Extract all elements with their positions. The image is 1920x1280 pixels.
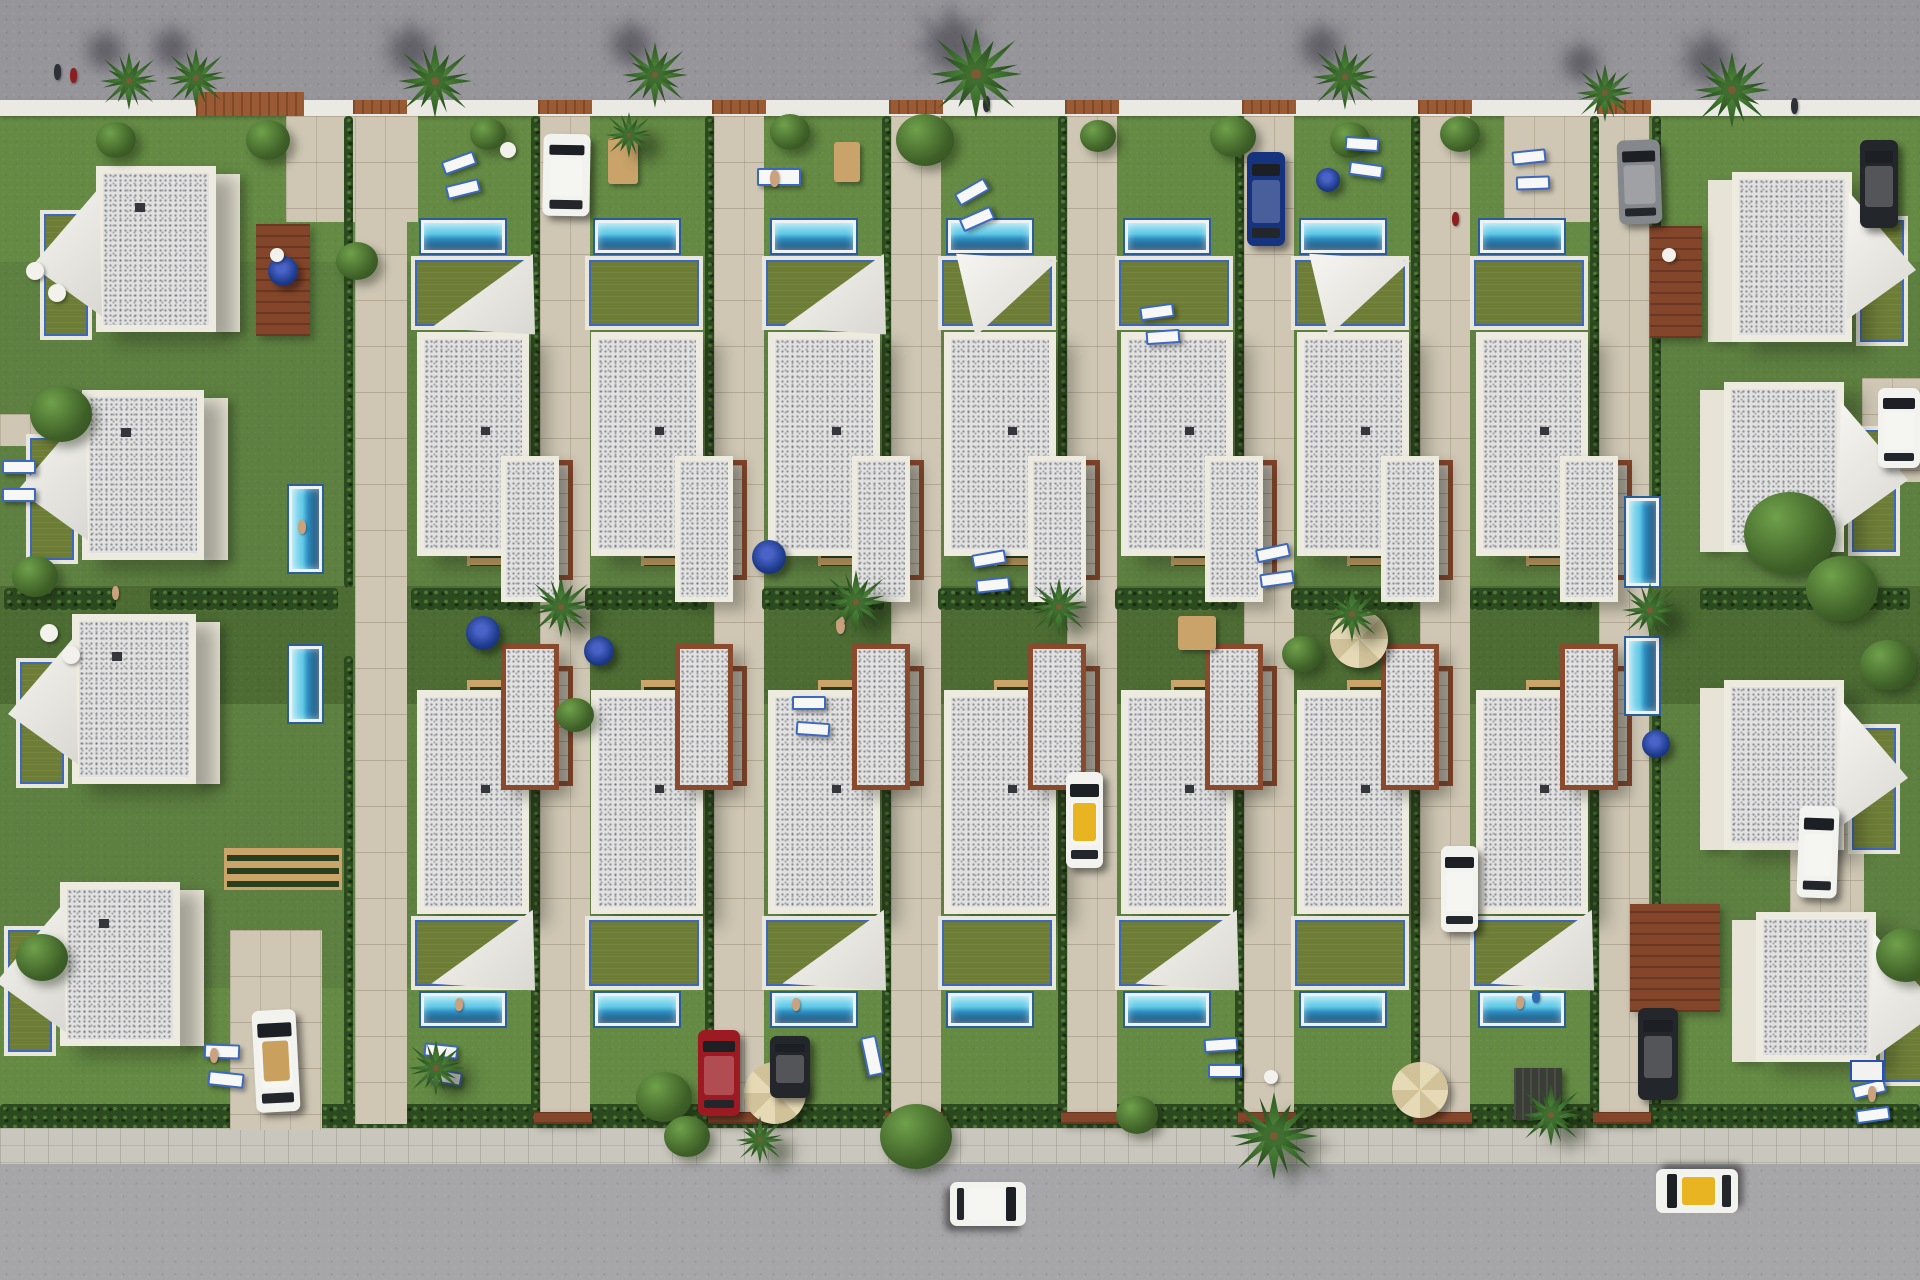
bush bbox=[12, 556, 58, 597]
roof-vent bbox=[655, 427, 664, 435]
car-dark bbox=[1860, 140, 1898, 228]
car-windshield bbox=[1883, 398, 1915, 408]
car-blue bbox=[1247, 152, 1285, 246]
car-rear-window bbox=[776, 1086, 805, 1092]
entrance-deck bbox=[1418, 100, 1472, 114]
lounger-prop bbox=[1204, 1037, 1239, 1053]
car-roof bbox=[1884, 412, 1914, 449]
bush bbox=[1806, 556, 1878, 621]
car-rear-window bbox=[1802, 880, 1831, 890]
chair-prop bbox=[270, 248, 284, 262]
bush bbox=[636, 1072, 692, 1122]
villa-side-wall bbox=[1708, 180, 1734, 342]
palm-tree bbox=[398, 44, 472, 118]
cool-prop bbox=[1850, 1060, 1884, 1082]
roof-vent bbox=[135, 203, 145, 212]
wood-deck bbox=[1650, 226, 1702, 338]
villa-side-wall bbox=[214, 174, 240, 332]
car-gray bbox=[1617, 139, 1663, 224]
bush bbox=[30, 386, 92, 442]
entrance-deck bbox=[712, 100, 766, 114]
bush bbox=[16, 934, 68, 981]
driveway bbox=[1244, 116, 1294, 1124]
chair-prop bbox=[62, 646, 80, 664]
car-conv bbox=[251, 1009, 300, 1113]
umb-n-prop bbox=[466, 616, 500, 650]
taxi-yellow-panel bbox=[1682, 1177, 1715, 1205]
bush bbox=[1282, 636, 1322, 672]
person bbox=[1532, 990, 1540, 1003]
bush bbox=[880, 1104, 952, 1169]
roof-terrace bbox=[1115, 256, 1233, 330]
person bbox=[1516, 996, 1524, 1009]
bush bbox=[896, 114, 954, 166]
palm-fronds bbox=[1230, 1092, 1318, 1180]
chair-prop bbox=[1264, 1070, 1278, 1084]
car-windshield bbox=[257, 1022, 291, 1037]
car-windshield bbox=[1865, 151, 1894, 162]
roof-vent bbox=[112, 652, 122, 661]
car-roof bbox=[549, 158, 583, 196]
palm-tree bbox=[1694, 52, 1770, 128]
car-windshield bbox=[1622, 150, 1655, 162]
swimming-pool bbox=[948, 993, 1032, 1026]
car-rear-window bbox=[1644, 1083, 1673, 1092]
bottom-sidewalk bbox=[0, 1128, 1920, 1166]
entrance-deck bbox=[538, 100, 592, 114]
villa-side-wall bbox=[1700, 390, 1726, 552]
villa-upper-wing bbox=[675, 456, 733, 602]
bush bbox=[96, 122, 136, 158]
roof-vent bbox=[1361, 785, 1370, 793]
palm-fronds bbox=[100, 52, 158, 110]
swimming-pool bbox=[1125, 993, 1209, 1026]
roof-terrace bbox=[1291, 916, 1409, 990]
palm-tree bbox=[1576, 64, 1634, 122]
table-prop bbox=[1178, 616, 1216, 650]
swimming-pool bbox=[1301, 993, 1385, 1026]
roof-vent bbox=[1540, 427, 1549, 435]
bush bbox=[770, 114, 810, 150]
car-windshield bbox=[549, 144, 585, 155]
bush bbox=[1860, 640, 1916, 690]
person bbox=[112, 586, 119, 600]
driveway bbox=[714, 116, 764, 1124]
person bbox=[455, 998, 463, 1011]
car-roof bbox=[1623, 165, 1655, 205]
palm-tree bbox=[1622, 582, 1678, 638]
entrance-deck bbox=[1242, 100, 1296, 114]
corner-villa-roof bbox=[82, 390, 204, 560]
person bbox=[792, 998, 800, 1011]
person bbox=[1791, 98, 1798, 114]
roof-vent bbox=[832, 785, 841, 793]
villa-upper-wing bbox=[1205, 644, 1263, 790]
chair-prop bbox=[26, 262, 44, 280]
roof-vent bbox=[655, 785, 664, 793]
swimming-pool-vertical bbox=[1626, 638, 1659, 714]
palm-fronds bbox=[398, 44, 472, 118]
car-rear-window bbox=[1884, 453, 1914, 461]
palm-fronds bbox=[1324, 586, 1380, 642]
roof-terrace bbox=[1470, 256, 1588, 330]
roof-vent bbox=[1540, 785, 1549, 793]
corner-villa-roof bbox=[1756, 912, 1876, 1062]
car-windshield bbox=[1445, 857, 1473, 868]
taxi-yellow-panel bbox=[1073, 803, 1097, 841]
roof-vent bbox=[1008, 427, 1017, 435]
car-roof bbox=[968, 1188, 1003, 1220]
car-windshield bbox=[1070, 784, 1098, 796]
car-rear-window bbox=[704, 1100, 734, 1109]
driveway bbox=[891, 116, 941, 1124]
chair-prop bbox=[48, 284, 66, 302]
roof-vent bbox=[1185, 427, 1194, 435]
car-dark bbox=[770, 1036, 810, 1098]
roof-vent bbox=[832, 427, 841, 435]
villa-upper-wing bbox=[1381, 644, 1439, 790]
driveway bbox=[1420, 116, 1470, 1124]
swimming-pool bbox=[595, 993, 679, 1026]
car-roof bbox=[1865, 166, 1892, 207]
lounger-prop bbox=[796, 721, 831, 737]
bush bbox=[246, 120, 290, 160]
lounger-prop bbox=[757, 168, 801, 186]
palm-tree bbox=[824, 570, 888, 634]
villa-upper-wing bbox=[1381, 456, 1439, 602]
villa-side-wall bbox=[1732, 920, 1758, 1062]
palm-tree bbox=[606, 112, 652, 158]
villa-upper-wing bbox=[501, 644, 559, 790]
car-white bbox=[542, 134, 590, 217]
swimming-pool-vertical bbox=[289, 646, 322, 722]
palm-tree bbox=[530, 576, 592, 638]
umb-n-prop bbox=[1316, 168, 1340, 192]
car-white bbox=[1796, 805, 1839, 898]
hedge-line bbox=[344, 656, 353, 1108]
palm-fronds bbox=[622, 42, 688, 108]
roof-terrace bbox=[585, 256, 703, 330]
umb-n-prop bbox=[752, 540, 786, 574]
villa-upper-wing bbox=[675, 644, 733, 790]
car-windshield bbox=[1643, 1020, 1673, 1032]
wood-deck bbox=[1630, 904, 1720, 1012]
umb-n-prop bbox=[1642, 730, 1670, 758]
car-roof bbox=[776, 1055, 805, 1084]
swimming-pool bbox=[1301, 220, 1385, 253]
car-roof bbox=[704, 1056, 734, 1096]
convertible-interior bbox=[262, 1040, 291, 1082]
villa-upper-wing bbox=[1560, 456, 1618, 602]
umb-n-prop bbox=[584, 636, 614, 666]
palm-tree bbox=[100, 52, 158, 110]
car-roof bbox=[1803, 833, 1833, 876]
palm-tree bbox=[166, 48, 226, 108]
swimming-pool-vertical bbox=[1626, 498, 1659, 586]
car-rear-window bbox=[1252, 228, 1279, 237]
palm-fronds bbox=[824, 570, 888, 634]
swimming-pool bbox=[1125, 220, 1209, 253]
car-taxi bbox=[1066, 772, 1103, 868]
palm-fronds bbox=[1520, 1084, 1582, 1146]
chair-prop bbox=[1662, 248, 1676, 262]
person bbox=[770, 170, 779, 187]
car-windshield bbox=[1006, 1187, 1016, 1220]
roof-vent bbox=[99, 919, 109, 928]
car-rear-window bbox=[262, 1092, 294, 1104]
person bbox=[298, 520, 306, 534]
hedge-line bbox=[344, 116, 353, 588]
car-roof bbox=[1252, 180, 1279, 223]
car-white bbox=[1878, 388, 1920, 468]
roof-terrace bbox=[938, 916, 1056, 990]
lounger-prop bbox=[1345, 136, 1380, 152]
person bbox=[1452, 212, 1459, 226]
table-prop bbox=[834, 142, 860, 182]
roof-vent bbox=[481, 427, 490, 435]
car-taxi bbox=[1656, 1169, 1738, 1213]
palm-tree bbox=[1312, 44, 1378, 110]
entrance-deck bbox=[1065, 100, 1119, 114]
swimming-pool bbox=[1480, 220, 1564, 253]
bush bbox=[1116, 1096, 1158, 1134]
palm-fronds bbox=[1312, 44, 1378, 110]
corner-villa-roof bbox=[1732, 172, 1852, 342]
palm-tree bbox=[736, 1116, 784, 1164]
palm-fronds bbox=[1622, 582, 1678, 638]
villa-side-wall bbox=[1700, 688, 1726, 850]
lounger-prop bbox=[2, 460, 36, 474]
corner-villa-roof bbox=[60, 882, 180, 1046]
lounger-prop bbox=[2, 488, 36, 502]
hedgerow bbox=[1700, 588, 1910, 610]
palm-fronds bbox=[930, 28, 1022, 120]
entrance-deck bbox=[534, 1112, 592, 1124]
person bbox=[54, 64, 61, 80]
car-dark bbox=[1638, 1008, 1678, 1100]
chair-prop bbox=[40, 624, 58, 642]
bush bbox=[1440, 116, 1480, 152]
car-rear-window bbox=[1071, 850, 1098, 860]
car-rear-window bbox=[1446, 916, 1473, 925]
palm-tree bbox=[1230, 1092, 1318, 1180]
wood-deck bbox=[224, 848, 342, 890]
palm-fronds bbox=[606, 112, 652, 158]
villa-side-wall bbox=[178, 890, 204, 1046]
palm-fronds bbox=[166, 48, 226, 108]
lounger-prop bbox=[1146, 329, 1181, 345]
bush bbox=[664, 1116, 710, 1157]
car-red bbox=[698, 1030, 740, 1116]
roof-vent bbox=[1361, 427, 1370, 435]
car-windshield bbox=[775, 1044, 805, 1052]
lounger-prop bbox=[792, 696, 826, 710]
car-white bbox=[950, 1182, 1026, 1226]
palm-tree bbox=[930, 28, 1022, 120]
palm-fronds bbox=[1694, 52, 1770, 128]
palm-fronds bbox=[736, 1116, 784, 1164]
villa-upper-wing bbox=[852, 644, 910, 790]
car-windshield bbox=[1667, 1174, 1678, 1207]
lounger-prop bbox=[1516, 175, 1550, 190]
roof-terrace bbox=[585, 916, 703, 990]
swimming-pool bbox=[421, 993, 505, 1026]
car-rear-window bbox=[1625, 208, 1656, 217]
car-rear-window bbox=[1865, 211, 1892, 220]
palm-fronds bbox=[530, 576, 592, 638]
person bbox=[1868, 1086, 1876, 1102]
roof-vent bbox=[121, 428, 131, 437]
chair-prop bbox=[500, 142, 516, 158]
villa-side-wall bbox=[202, 398, 228, 560]
roof-vent bbox=[1185, 785, 1194, 793]
palm-fronds bbox=[1030, 578, 1088, 636]
roof-vent bbox=[1008, 785, 1017, 793]
umb-b-prop bbox=[1392, 1062, 1448, 1118]
car-rear-window bbox=[549, 200, 583, 209]
entrance-deck bbox=[1061, 1112, 1119, 1124]
palm-tree bbox=[1030, 578, 1088, 636]
car-rear-window bbox=[957, 1188, 965, 1220]
aerial-villa-development-render bbox=[0, 0, 1920, 1280]
palm-tree bbox=[1324, 586, 1380, 642]
corner-villa-roof bbox=[96, 166, 216, 332]
villa-upper-wing bbox=[1560, 644, 1618, 790]
car-roof bbox=[1644, 1036, 1673, 1078]
person bbox=[70, 68, 77, 83]
person bbox=[210, 1048, 218, 1063]
bush bbox=[336, 242, 378, 280]
roof-vent bbox=[481, 785, 490, 793]
swimming-pool bbox=[772, 993, 856, 1026]
car-windshield bbox=[1804, 817, 1835, 830]
palm-fronds bbox=[408, 1040, 464, 1096]
swimming-pool bbox=[421, 220, 505, 253]
villa-upper-wing bbox=[1028, 644, 1086, 790]
car-white bbox=[1441, 846, 1478, 932]
lounger-prop bbox=[1208, 1064, 1242, 1078]
villa-upper-wing bbox=[1205, 456, 1263, 602]
car-windshield bbox=[1252, 164, 1281, 176]
palm-tree bbox=[622, 42, 688, 108]
corner-villa-roof bbox=[72, 614, 196, 784]
car-rear-window bbox=[1722, 1175, 1730, 1207]
hedgerow bbox=[150, 588, 338, 610]
car-windshield bbox=[703, 1041, 735, 1052]
swimming-pool bbox=[595, 220, 679, 253]
car-roof bbox=[1446, 872, 1473, 912]
swimming-pool bbox=[772, 220, 856, 253]
palm-fronds bbox=[1576, 64, 1634, 122]
villa-side-wall bbox=[194, 622, 220, 784]
palm-tree bbox=[1520, 1084, 1582, 1146]
entrance-deck bbox=[1593, 1112, 1651, 1124]
palm-tree bbox=[408, 1040, 464, 1096]
bush bbox=[1210, 116, 1256, 157]
bush bbox=[556, 698, 594, 732]
